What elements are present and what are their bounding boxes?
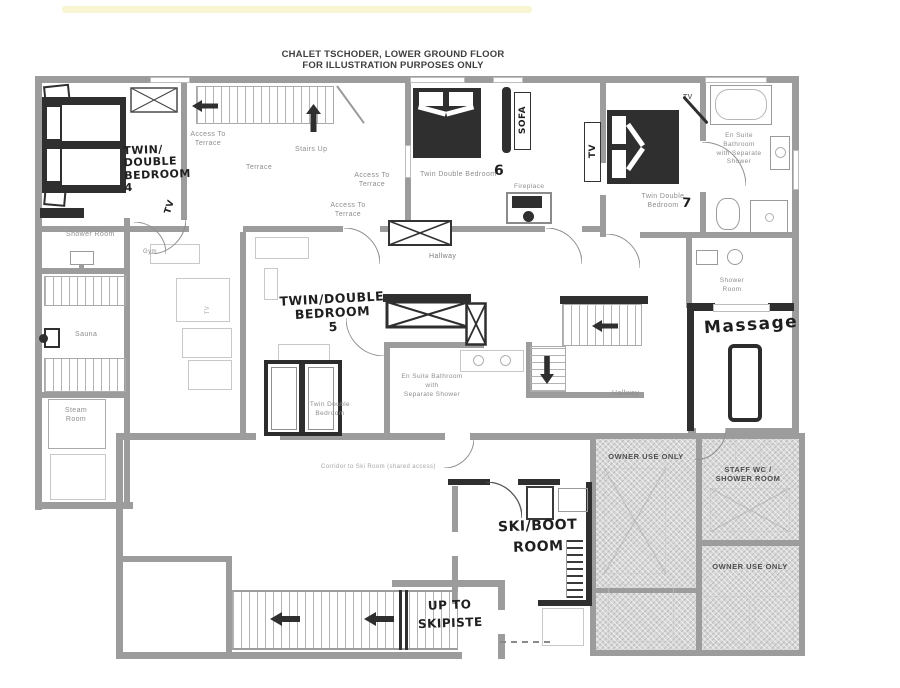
wall-segment [702, 540, 799, 546]
crossed-fixture-icon [710, 488, 790, 532]
window [705, 77, 767, 83]
pillow [47, 149, 60, 181]
ensuite7-label: En Suite Bathroom with Separate Shower [702, 132, 776, 167]
door-leaf [399, 590, 402, 650]
wardrobe-door [308, 367, 334, 430]
fixture-sketch [706, 596, 750, 644]
wall-segment [470, 433, 590, 440]
gym-equipment-sketch [188, 360, 232, 390]
toilet [716, 198, 740, 230]
corridor-note: Corridor to Ski Room (shared access) [321, 463, 436, 471]
gym-label: Gym [143, 248, 157, 256]
wall-segment [590, 650, 805, 656]
door-arc [344, 228, 380, 264]
sink [70, 251, 94, 265]
furniture-sketch [40, 208, 84, 218]
furniture-sketch [264, 268, 278, 300]
bedroom7-number: 7 [682, 197, 692, 212]
duvet-fold [446, 104, 474, 116]
wall-segment [240, 232, 246, 440]
pillow [449, 92, 473, 106]
owner-use-only-label: OWNER USE ONLY [600, 452, 692, 461]
fixture-sketch [608, 584, 674, 642]
access-to-terrace-label: Access To Terrace [326, 201, 370, 220]
floor-plan: CHALET TSCHODER, LOWER GROUND FLOOR FOR … [0, 0, 900, 688]
fixture-sketch [754, 596, 794, 644]
fireplace-flue [523, 211, 534, 222]
wall-segment [686, 238, 692, 308]
arrow-down-icon [540, 356, 554, 384]
wall-segment [405, 83, 411, 145]
wall-segment [560, 296, 648, 304]
tv-label: TV [588, 139, 598, 163]
wardrobe-divider [299, 364, 305, 432]
sofa-label: SOFA [518, 104, 528, 136]
fixture-sketch [50, 454, 106, 500]
arrow-up-icon [306, 104, 321, 132]
terrace-label: Terrace [246, 163, 272, 172]
pillow [419, 92, 443, 106]
tv-label: TV [204, 306, 212, 314]
title-line2: FOR ILLUSTRATION PURPOSES ONLY [273, 60, 513, 71]
steam-room-label: Steam Room [56, 406, 96, 425]
wall-segment [687, 303, 715, 311]
arrow-left-icon [364, 612, 394, 626]
arrow-left-icon [592, 320, 618, 332]
pillow [47, 107, 60, 139]
door-arc [486, 482, 522, 518]
wall-segment [40, 268, 130, 274]
wall-segment [799, 433, 805, 656]
shower-drain [765, 213, 774, 222]
sauna-bench [44, 358, 126, 392]
wall-segment [450, 226, 545, 232]
door-arc [546, 228, 582, 264]
bedroom6-label: Twin Double Bedroom [420, 170, 496, 179]
duvet-fold [626, 147, 645, 171]
shower-room-label: Shower Room [66, 230, 115, 239]
hallway-label: Hallway [429, 252, 456, 261]
sauna-bench [44, 276, 126, 306]
bedroom5-printed-label: Twin Double Bedroom [302, 401, 358, 419]
wall-segment [448, 479, 490, 485]
wall-segment [116, 652, 462, 659]
bedroom4-label: TWIN/ DOUBLE BEDROOM 4 [123, 143, 197, 195]
fireplace [506, 192, 552, 224]
massage-label: Massage [703, 313, 798, 339]
wall-segment [498, 580, 505, 610]
stairs-up-label: Stairs Up [295, 145, 327, 154]
fireplace-label: Fireplace [514, 183, 544, 192]
wall-segment [600, 195, 606, 237]
window [493, 77, 523, 83]
page-title: CHALET TSCHODER, LOWER GROUND FLOOR FOR … [273, 49, 513, 72]
stair-diagonal [336, 85, 365, 123]
window [150, 77, 190, 83]
sink [696, 250, 718, 265]
wall-segment [35, 76, 42, 510]
staff-wc-label: STAFF WC / SHOWER ROOM [702, 465, 794, 483]
shower-room-label: Shower Room [714, 277, 750, 295]
duvet-fold [418, 104, 446, 116]
hallway-label: Hallway [612, 389, 639, 398]
crossed-window-icon [385, 300, 471, 329]
arrow-left-icon [192, 100, 218, 112]
terrace-door [405, 145, 411, 178]
wall-segment [122, 556, 228, 562]
access-to-terrace-label: Access To Terrace [350, 171, 394, 190]
wall-segment [792, 76, 799, 436]
wall-segment [384, 348, 390, 440]
title-line1: CHALET TSCHODER, LOWER GROUND FLOOR [273, 49, 513, 60]
ski-boot-room-label: SKI/BOOT ROOM [487, 514, 588, 559]
wall-segment [518, 479, 560, 485]
scan-artifact [62, 6, 532, 13]
wall-segment [452, 486, 458, 532]
wardrobe [264, 360, 342, 436]
sink-bowl [473, 355, 484, 366]
wall-segment [243, 226, 343, 232]
duvet-fold [626, 123, 645, 147]
bedroom6-number: 6 [494, 164, 504, 180]
bed [607, 110, 679, 184]
toilet [727, 249, 743, 265]
mattress [62, 149, 120, 185]
wall-segment [498, 634, 505, 659]
sink-stand [79, 265, 84, 271]
arrow-left-icon [270, 612, 300, 626]
door-arc [444, 438, 474, 468]
furniture-sketch [255, 237, 309, 259]
wardrobe-door [271, 367, 297, 430]
gym-equipment-sketch [182, 328, 232, 358]
wall-segment [687, 303, 694, 431]
gym-equipment-sketch [176, 278, 230, 322]
ensuite5-label: En Suite Bathroom with Separate Shower [394, 373, 470, 399]
up-to-ski-piste-label: UP TO SKIPISTE [407, 595, 492, 634]
sauna-label: Sauna [75, 330, 97, 339]
mattress [62, 105, 120, 141]
door-arc [606, 234, 640, 268]
massage-table [728, 344, 762, 422]
dashed-path [500, 641, 550, 643]
sink-bowl [775, 147, 786, 158]
fireplace-insert [512, 196, 542, 208]
sink-bowl [500, 355, 511, 366]
window [793, 150, 799, 190]
window [410, 77, 465, 83]
wall-segment [116, 433, 123, 659]
bed [413, 88, 481, 158]
crossed-window-icon [388, 220, 452, 246]
pillow [612, 116, 626, 144]
sofa [502, 87, 511, 153]
bed [42, 97, 126, 193]
tv-label: TV [163, 199, 177, 216]
shower-tray [750, 200, 788, 234]
door-arc [694, 428, 726, 460]
wall-segment [392, 580, 500, 587]
vanity-unit [460, 350, 524, 372]
wall-segment [768, 303, 794, 311]
wall-segment [40, 392, 130, 398]
bench [558, 488, 588, 512]
bathtub [710, 85, 772, 125]
wall-segment [538, 600, 592, 606]
owner-use-only-label: OWNER USE ONLY [702, 562, 798, 571]
massage-window [713, 304, 770, 312]
bedroom5-label: TWIN/DOUBLE BEDROOM 5 [279, 289, 386, 336]
wall-segment [700, 192, 706, 238]
crossed-fixture-icon [604, 468, 666, 574]
wall-segment [116, 433, 256, 440]
bathtub-inner [715, 89, 767, 120]
crossed-window-icon [465, 302, 487, 346]
sauna-bucket [39, 334, 48, 343]
crossed-window-icon [130, 87, 178, 113]
pillow [612, 150, 626, 178]
